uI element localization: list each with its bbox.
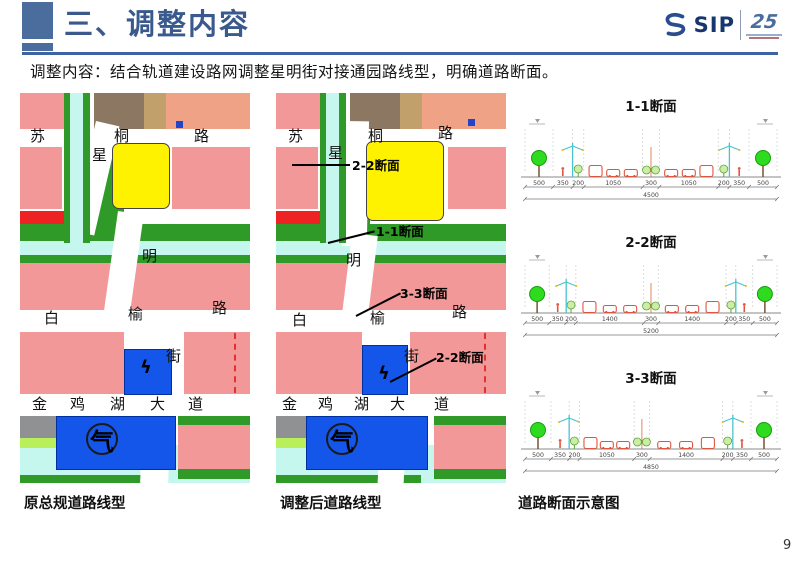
cross-section-3-3断面: 3-3断面500350200105030014002003505004850 bbox=[515, 367, 787, 491]
svg-text:1050: 1050 bbox=[599, 452, 615, 459]
blue-marker bbox=[468, 119, 475, 126]
map-block bbox=[70, 93, 83, 243]
road-label: 苏 bbox=[30, 129, 45, 144]
anniversary-logo: 25 bbox=[746, 11, 782, 39]
callout-1-1: 1-1断面 bbox=[376, 221, 424, 240]
svg-text:1050: 1050 bbox=[605, 180, 621, 187]
map-block bbox=[20, 394, 250, 416]
cross-section-title: 2-2断面 bbox=[515, 231, 787, 249]
road-label: 街 bbox=[166, 349, 181, 364]
road-label: 榆 bbox=[370, 311, 385, 326]
road-label: 白 bbox=[44, 311, 59, 326]
svg-text:1400: 1400 bbox=[684, 316, 700, 323]
cross-section-title: 1-1断面 bbox=[515, 95, 787, 113]
map-block bbox=[276, 93, 322, 129]
yellow-parcel bbox=[112, 143, 170, 209]
svg-text:200: 200 bbox=[572, 180, 584, 187]
map-block bbox=[434, 479, 506, 483]
caption-adjusted: 调整后道路线型 bbox=[280, 492, 382, 513]
svg-text:350: 350 bbox=[552, 316, 564, 323]
gas-facility-symbol: 气 bbox=[326, 423, 358, 455]
map-block bbox=[276, 241, 506, 256]
road-label: 路 bbox=[212, 301, 227, 316]
road-label: 金 bbox=[282, 397, 297, 412]
map-block bbox=[276, 332, 362, 396]
gas-parcel bbox=[306, 416, 428, 470]
header-accent-bar bbox=[22, 43, 53, 51]
callout-2-2-bottom: 2-2断面 bbox=[436, 347, 484, 366]
sip-logo: SIP 25 bbox=[661, 10, 782, 40]
map-block bbox=[448, 145, 506, 209]
road-label: 桐 bbox=[114, 129, 129, 144]
callout-2-2-top-leader-line bbox=[292, 164, 350, 166]
map-block bbox=[184, 332, 250, 396]
road-label: 明 bbox=[142, 249, 157, 264]
map-block bbox=[20, 93, 66, 129]
road-label: 白 bbox=[292, 313, 307, 328]
svg-text:350: 350 bbox=[736, 452, 748, 459]
cross-section-figure: 500350200105030010502003505004500 bbox=[515, 113, 787, 215]
dashed-red-line bbox=[484, 333, 486, 393]
gas-facility-symbol: 气 bbox=[86, 423, 118, 455]
road-label: 道 bbox=[188, 397, 203, 412]
road-label: 路 bbox=[452, 305, 467, 320]
caption-original: 原总规道路线型 bbox=[24, 492, 126, 513]
map-block bbox=[20, 332, 124, 396]
cross-sections-panel: 1-1断面5003502001050300105020035050045002-… bbox=[515, 95, 787, 503]
road-label: 街 bbox=[404, 349, 419, 364]
callout-3-3: 3-3断面 bbox=[400, 283, 448, 302]
road-label: 路 bbox=[194, 129, 209, 144]
road-label: 道 bbox=[434, 397, 449, 412]
cross-section-figure: 500350200105030014002003505004850 bbox=[515, 385, 787, 487]
svg-text:200: 200 bbox=[725, 316, 737, 323]
map-block bbox=[434, 425, 506, 471]
road-label: 榆 bbox=[128, 307, 143, 322]
page-title: 三、调整内容 bbox=[64, 1, 250, 43]
caption-sections: 道路断面示意图 bbox=[518, 492, 620, 513]
map-block bbox=[144, 93, 166, 129]
road-label: 鸡 bbox=[70, 397, 85, 412]
map-block bbox=[400, 93, 422, 129]
svg-text:500: 500 bbox=[759, 316, 771, 323]
dashed-red-line bbox=[234, 333, 236, 393]
svg-text:500: 500 bbox=[533, 180, 545, 187]
svg-text:200: 200 bbox=[722, 452, 734, 459]
logo-divider bbox=[740, 10, 741, 40]
road-label: 苏 bbox=[288, 129, 303, 144]
map-block bbox=[172, 145, 250, 209]
svg-text:350: 350 bbox=[733, 180, 745, 187]
map-original-plan: 苏桐路星明街白榆路金鸡湖大道气ϟ bbox=[20, 93, 250, 483]
road-label: 金 bbox=[32, 397, 47, 412]
svg-text:300: 300 bbox=[645, 180, 657, 187]
road-label: 大 bbox=[150, 397, 165, 412]
road-label: 鸡 bbox=[318, 397, 333, 412]
road-label: 桐 bbox=[368, 129, 383, 144]
map-adjusted-plan: 苏桐路星明街白榆路金鸡湖大道气ϟ2-2断面1-1断面3-3断面2-2断面 bbox=[276, 93, 506, 483]
svg-text:300: 300 bbox=[636, 452, 648, 459]
svg-text:200: 200 bbox=[718, 180, 730, 187]
blue-marker bbox=[176, 121, 183, 128]
logo-subline-decor bbox=[746, 34, 782, 36]
cross-section-figure: 500350200140030014002003505005200 bbox=[515, 249, 787, 351]
sip-logo-text: SIP bbox=[694, 13, 735, 37]
map-block bbox=[422, 93, 506, 129]
slide: 三、调整内容 SIP 25 调整内容：结合轨道建设路网调整星明街对接通园路线型，… bbox=[0, 0, 800, 565]
svg-text:500: 500 bbox=[531, 316, 543, 323]
map-block bbox=[178, 425, 250, 471]
cross-section-title: 3-3断面 bbox=[515, 367, 787, 385]
road-label: 路 bbox=[438, 126, 453, 141]
road-label: 星 bbox=[92, 148, 107, 163]
svg-text:300: 300 bbox=[645, 316, 657, 323]
road-label: 湖 bbox=[354, 397, 369, 412]
svg-text:5200: 5200 bbox=[643, 328, 659, 335]
map-block bbox=[178, 479, 250, 483]
svg-text:350: 350 bbox=[738, 316, 750, 323]
map-block bbox=[20, 147, 62, 209]
anniversary-number: 25 bbox=[749, 11, 779, 33]
svg-text:1400: 1400 bbox=[678, 452, 694, 459]
road-label: 明 bbox=[346, 253, 361, 268]
map-block bbox=[20, 438, 56, 448]
road-label: 湖 bbox=[110, 397, 125, 412]
page-number: 9 bbox=[783, 538, 791, 553]
svg-text:500: 500 bbox=[758, 452, 770, 459]
sip-swirl-icon bbox=[661, 12, 689, 38]
yellow-parcel bbox=[366, 141, 444, 221]
road-label: 大 bbox=[390, 397, 405, 412]
svg-text:1050: 1050 bbox=[681, 180, 697, 187]
header-rule bbox=[22, 52, 778, 55]
logo-subline-decor2 bbox=[749, 37, 779, 39]
map-block bbox=[276, 310, 506, 332]
svg-text:4500: 4500 bbox=[643, 192, 659, 199]
cross-section-1-1断面: 1-1断面500350200105030010502003505004500 bbox=[515, 95, 787, 219]
svg-text:1400: 1400 bbox=[602, 316, 618, 323]
svg-text:200: 200 bbox=[568, 452, 580, 459]
map-block bbox=[276, 147, 318, 209]
map-block bbox=[276, 263, 506, 311]
subtitle: 调整内容：结合轨道建设路网调整星明街对接通园路线型，明确道路断面。 bbox=[30, 60, 770, 82]
svg-text:500: 500 bbox=[757, 180, 769, 187]
svg-text:4850: 4850 bbox=[643, 464, 659, 471]
power-facility-symbol: ϟ bbox=[378, 365, 390, 383]
callout-2-2-top: 2-2断面 bbox=[352, 155, 400, 174]
cross-section-2-2断面: 2-2断面500350200140030014002003505005200 bbox=[515, 231, 787, 355]
map-block bbox=[326, 93, 339, 243]
svg-text:350: 350 bbox=[557, 180, 569, 187]
svg-text:500: 500 bbox=[532, 452, 544, 459]
svg-text:200: 200 bbox=[565, 316, 577, 323]
road-label: 星 bbox=[328, 146, 343, 161]
power-facility-symbol: ϟ bbox=[140, 359, 152, 377]
header-accent-square bbox=[22, 2, 53, 39]
svg-text:350: 350 bbox=[554, 452, 566, 459]
